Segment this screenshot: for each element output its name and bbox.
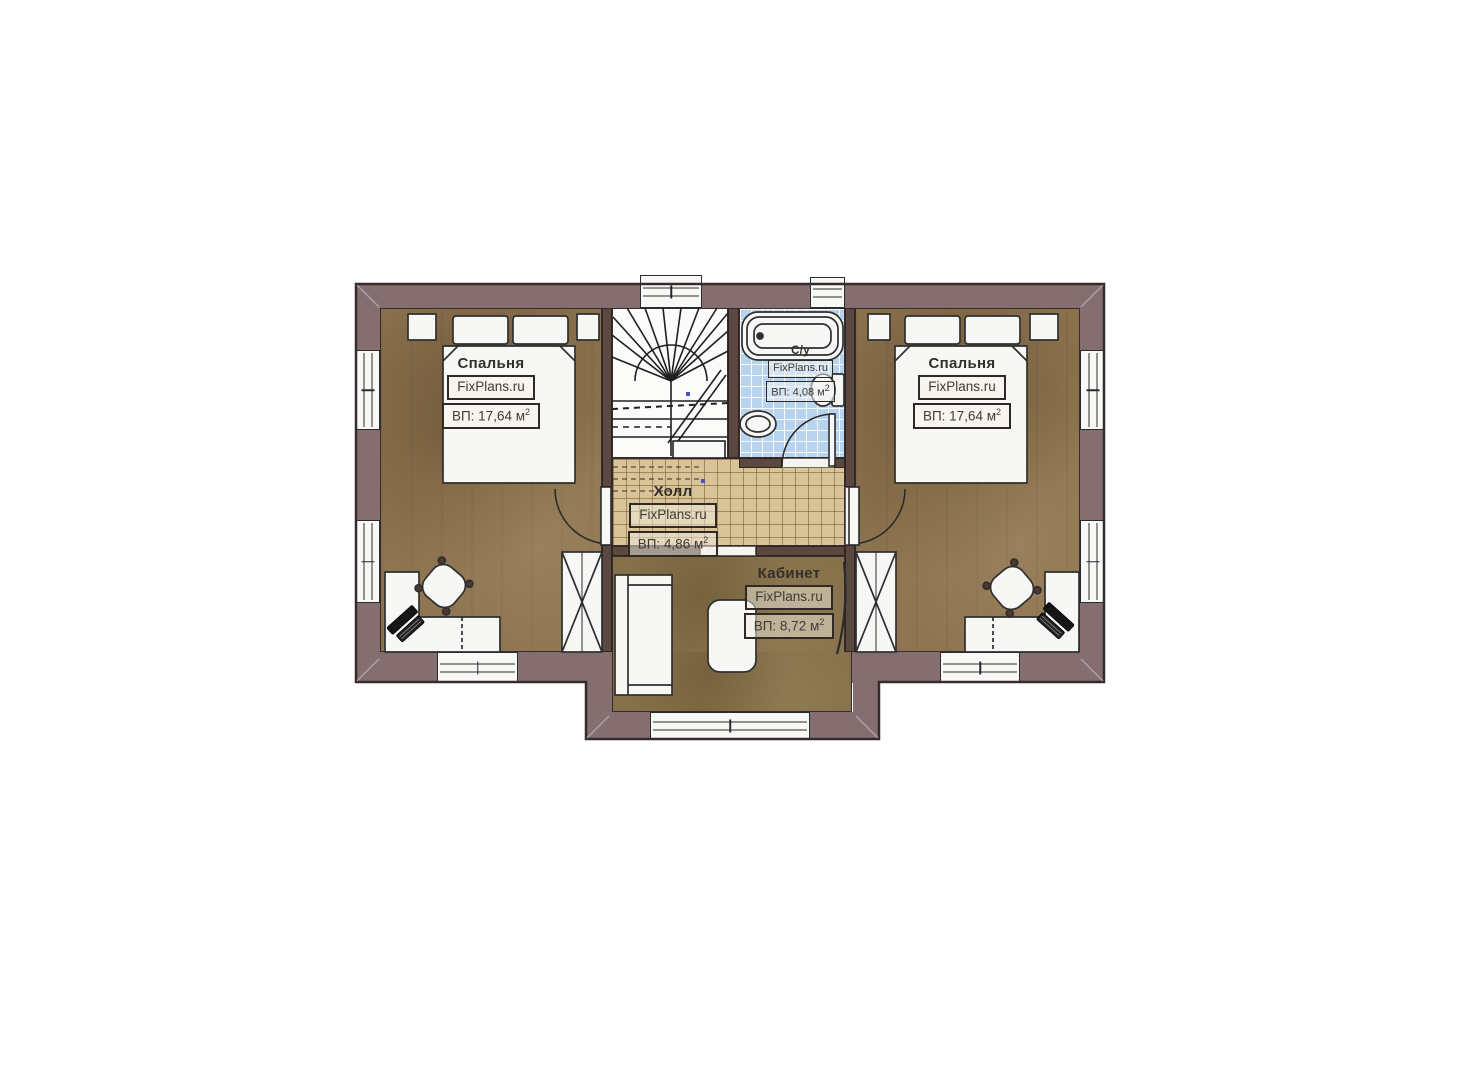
room-label-bedroom-left: Спальня FixPlans.ru ВП: 17,64 м2: [431, 355, 551, 429]
room-label-office: Кабинет FixPlans.ru ВП: 8,72 м2: [729, 565, 849, 639]
sofa: [615, 575, 672, 695]
floor-plan: Спальня FixPlans.ru ВП: 17,64 м2 Спальня…: [355, 283, 1105, 740]
door-right-bedroom: [849, 487, 905, 545]
area-box: ВП: 4,86 м2: [628, 531, 719, 557]
watermark-box: FixPlans.ru: [745, 585, 833, 610]
room-label-hall: Холл FixPlans.ru ВП: 4,86 м2: [613, 483, 733, 557]
area-box: ВП: 4,08 м2: [766, 381, 834, 402]
room-label-bathroom: С/у FixPlans.ru ВП: 4,08 м2: [753, 345, 848, 402]
watermark-box: FixPlans.ru: [447, 375, 535, 400]
room-label-bedroom-right: Спальня FixPlans.ru ВП: 17,64 м2: [902, 355, 1022, 429]
door-leaf: [601, 487, 611, 545]
pillow: [905, 316, 960, 344]
area-box: ВП: 8,72 м2: [744, 613, 835, 639]
room-title: Спальня: [458, 355, 525, 372]
pillow: [965, 316, 1020, 344]
room-title: Кабинет: [758, 565, 821, 582]
watermark-box: FixPlans.ru: [918, 375, 1006, 400]
room-title: С/у: [791, 345, 810, 357]
nightstand: [577, 314, 599, 340]
nightstand: [1030, 314, 1058, 340]
nightstand: [408, 314, 436, 340]
floor-plan-page: Спальня FixPlans.ru ВП: 17,64 м2 Спальня…: [0, 0, 1473, 1080]
wardrobe-right: [856, 552, 896, 652]
door-bathroom: [782, 414, 835, 466]
staircase: [612, 308, 728, 458]
door-leaf: [829, 414, 835, 466]
sink: [740, 411, 776, 437]
area-box: ВП: 17,64 м2: [442, 403, 540, 429]
door-left-bedroom: [555, 487, 611, 545]
nightstand: [868, 314, 890, 340]
door-arc: [782, 414, 834, 466]
office-chair-left: [414, 556, 475, 617]
watermark-box: FixPlans.ru: [768, 360, 833, 378]
stair-landing: [673, 441, 725, 458]
wardrobe-left: [562, 552, 602, 652]
door-leaf: [849, 487, 859, 545]
room-title: Холл: [654, 483, 693, 500]
pillow: [453, 316, 508, 344]
watermark-box: FixPlans.ru: [629, 503, 717, 528]
pillow: [513, 316, 568, 344]
area-box: ВП: 17,64 м2: [913, 403, 1011, 429]
office-chair-right: [982, 558, 1043, 619]
room-title: Спальня: [929, 355, 996, 372]
accent-dot: [686, 392, 690, 396]
